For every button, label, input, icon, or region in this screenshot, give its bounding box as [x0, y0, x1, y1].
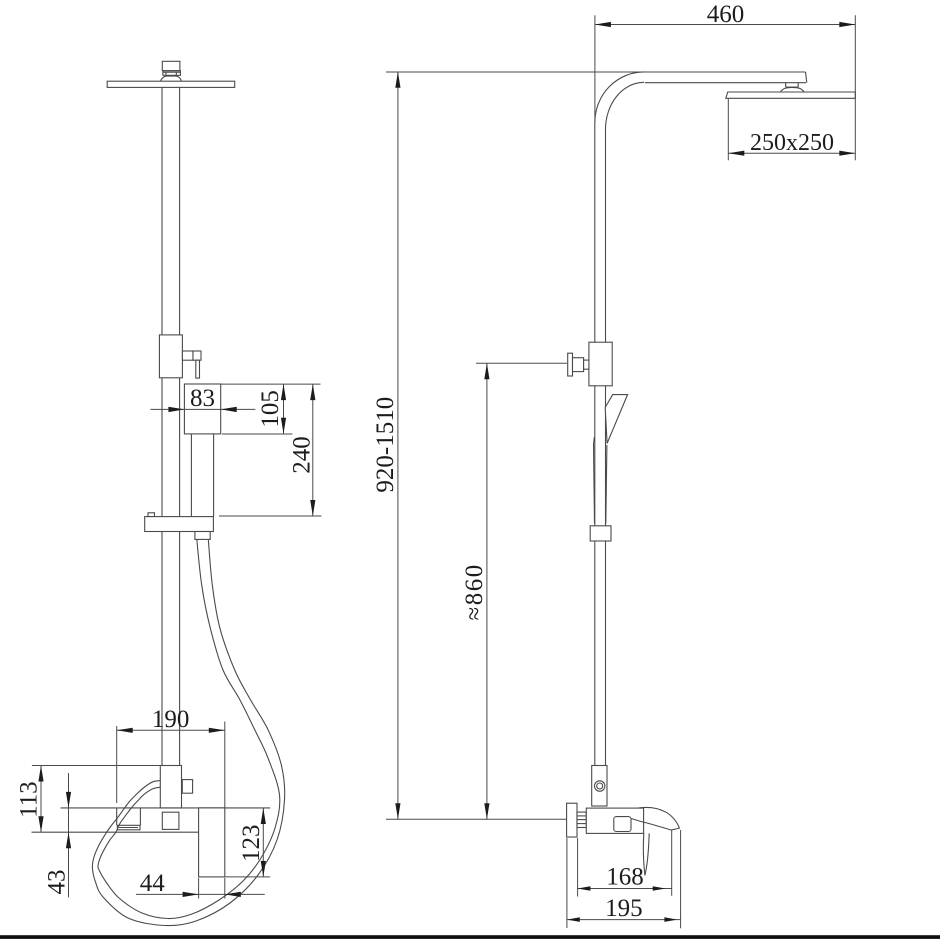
svg-text:≈860: ≈860 — [461, 563, 488, 620]
svg-text:123: 123 — [238, 824, 265, 862]
svg-text:43: 43 — [44, 870, 71, 895]
svg-text:83: 83 — [190, 385, 215, 412]
svg-text:113: 113 — [16, 781, 43, 818]
svg-text:168: 168 — [606, 863, 644, 890]
svg-text:190: 190 — [152, 706, 190, 733]
svg-text:460: 460 — [707, 1, 745, 28]
svg-text:240: 240 — [288, 436, 315, 474]
svg-text:44: 44 — [140, 870, 166, 897]
svg-text:920-1510: 920-1510 — [372, 397, 399, 493]
svg-text:250x250: 250x250 — [750, 130, 834, 156]
svg-text:105: 105 — [257, 390, 284, 428]
svg-text:195: 195 — [605, 895, 643, 922]
